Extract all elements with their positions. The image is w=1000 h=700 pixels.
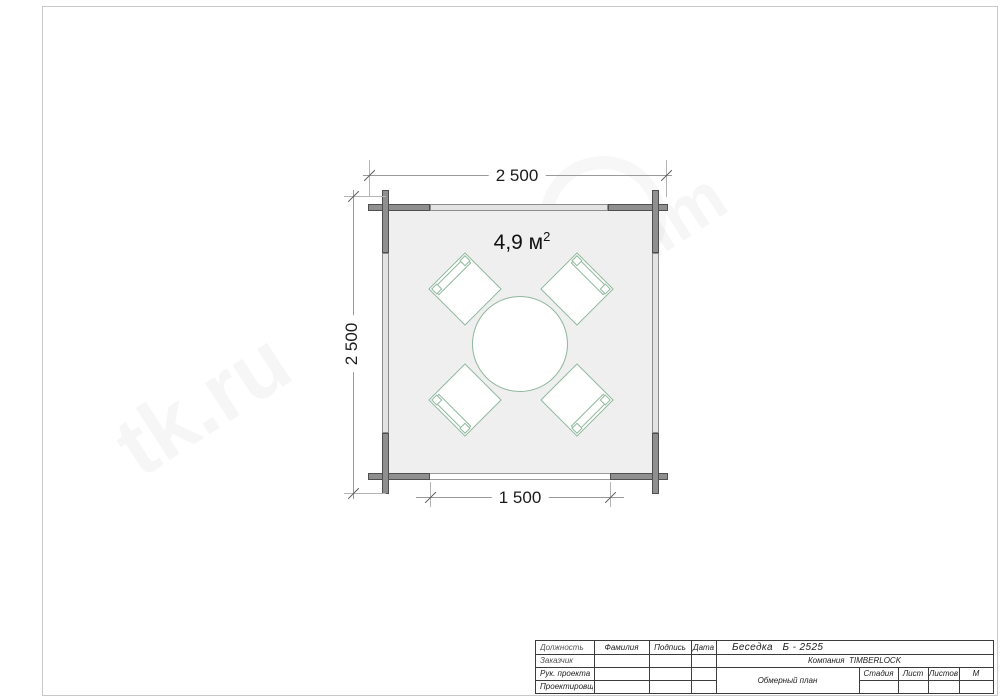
titleblock-sheet-label: Лист: [898, 667, 928, 680]
titleblock-projectlead-label: Рук. проекта: [540, 667, 593, 680]
drawing-canvas: tim tk.ru 4,9 м2: [0, 0, 1000, 700]
wall-right-railing: [652, 253, 659, 433]
titleblock-surname-header: Фамилия: [594, 641, 649, 654]
dimension-value-top: 2 500: [489, 166, 546, 186]
area-label: 4,9 м2: [494, 229, 551, 255]
titleblock-sheets-label: Листов: [928, 667, 959, 680]
wall-top-right-segment: [608, 204, 668, 211]
wall-bottom-right-segment: [610, 473, 668, 480]
titleblock: Должность Фамилия Подпись Дата Беседка Б…: [535, 640, 994, 694]
titleblock-date-header: Дата: [691, 641, 716, 654]
wall-left-railing: [382, 253, 389, 433]
extension-line: [369, 160, 370, 197]
titleblock-doc-name: Обмерный план: [716, 667, 859, 693]
titleblock-position-header: Должность: [540, 641, 593, 654]
wall-right-bottom-segment: [652, 433, 659, 494]
titleblock-stage-label: Стадия: [859, 667, 898, 680]
area-value: 4,9 м: [494, 231, 543, 254]
titleblock-signature-header: Подпись: [649, 641, 691, 654]
extension-line: [344, 493, 386, 494]
titleblock-customer-label: Заказчик: [540, 654, 593, 667]
dimension-value-bottom: 1 500: [492, 488, 549, 508]
entrance-opening: [430, 473, 610, 480]
titleblock-project-title: Беседка Б - 2525: [732, 641, 990, 654]
extension-line: [666, 160, 667, 197]
wall-top-left-segment: [368, 204, 430, 211]
dimension-value-left: 2 500: [342, 316, 362, 373]
extension-line: [344, 196, 386, 197]
titleblock-designer-label: Проектировщик: [540, 680, 593, 693]
round-table: [472, 296, 568, 392]
wall-left-bottom-segment: [382, 433, 389, 494]
wall-bottom-left-segment: [368, 473, 430, 480]
wall-top-railing: [430, 204, 608, 211]
wall-right-top-segment: [652, 190, 659, 253]
titleblock-company: Компания TIMBERLOCK: [716, 654, 993, 667]
wall-left-top-segment: [382, 190, 389, 253]
area-superscript: 2: [543, 229, 550, 244]
titleblock-scale-label: М: [959, 667, 993, 680]
titleblock-line: [859, 680, 993, 681]
